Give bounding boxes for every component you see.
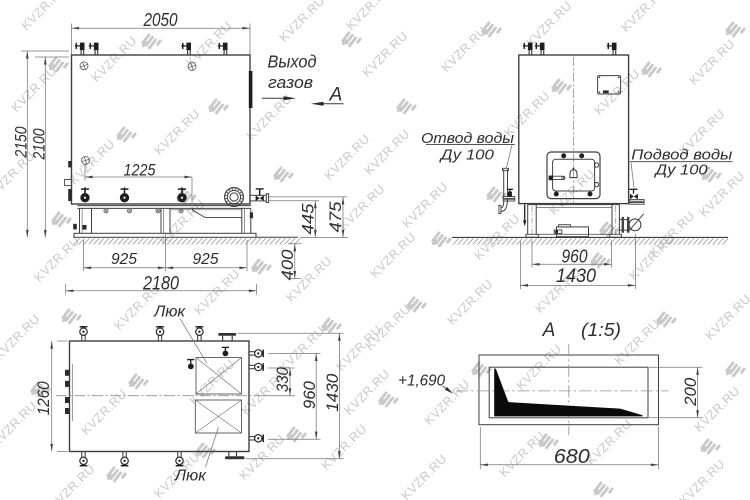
svg-text:KVZR.RU: KVZR.RU <box>89 34 140 85</box>
svg-text:KVZR.RU: KVZR.RU <box>0 399 40 450</box>
svg-text:KVZR.RU: KVZR.RU <box>79 387 130 438</box>
svg-text:KVZR.RU: KVZR.RU <box>677 457 728 500</box>
svg-text:KVZR.RU: KVZR.RU <box>32 234 83 285</box>
svg-text:2180: 2180 <box>142 273 179 294</box>
svg-text:925: 925 <box>111 251 137 268</box>
svg-text:Люк: Люк <box>153 303 186 320</box>
svg-text:KVZR.RU: KVZR.RU <box>192 267 243 318</box>
svg-text:KVZR.RU: KVZR.RU <box>277 324 328 375</box>
svg-text:Люк: Люк <box>174 467 207 484</box>
svg-text:2100: 2100 <box>31 128 49 161</box>
svg-text:1430: 1430 <box>323 373 342 412</box>
svg-text:A: A <box>329 85 343 106</box>
svg-text:KVZR.RU: KVZR.RU <box>400 180 451 231</box>
svg-text:680: 680 <box>554 446 590 468</box>
svg-text:KVZR.RU: KVZR.RU <box>0 312 43 363</box>
svg-text:KVZR.RU: KVZR.RU <box>399 452 450 500</box>
svg-text:KVZR.RU: KVZR.RU <box>152 107 203 158</box>
svg-text:Подвод воды: Подвод воды <box>631 148 732 164</box>
svg-text:KVZR.RU: KVZR.RU <box>319 422 370 473</box>
svg-text:Ду 100: Ду 100 <box>438 147 493 163</box>
svg-text:KVZR.RU: KVZR.RU <box>67 137 118 188</box>
svg-text:Выход: Выход <box>268 52 317 72</box>
svg-text:330: 330 <box>273 367 292 392</box>
svg-text:KVZR.RU: KVZR.RU <box>360 29 411 80</box>
svg-text:925: 925 <box>193 251 219 268</box>
svg-text:KVZR.RU: KVZR.RU <box>703 292 750 343</box>
svg-text:960: 960 <box>562 246 588 266</box>
svg-text:KVZR.RU: KVZR.RU <box>368 230 419 281</box>
svg-text:KVZR.RU: KVZR.RU <box>277 0 328 45</box>
svg-text:200: 200 <box>681 377 700 407</box>
svg-text:KVZR.RU: KVZR.RU <box>9 64 60 115</box>
svg-text:KVZR.RU: KVZR.RU <box>445 277 496 328</box>
svg-text:2150: 2150 <box>13 126 31 159</box>
svg-text:KVZR.RU: KVZR.RU <box>687 37 738 88</box>
svg-text:газов: газов <box>268 74 313 92</box>
svg-text:KVZR.RU: KVZR.RU <box>619 0 670 35</box>
svg-text:960: 960 <box>300 381 319 410</box>
svg-text:(1:5): (1:5) <box>581 320 621 340</box>
svg-text:1260: 1260 <box>35 381 53 416</box>
svg-text:KVZR.RU: KVZR.RU <box>19 0 70 33</box>
svg-text:445: 445 <box>298 203 317 235</box>
svg-text:KVZR.RU: KVZR.RU <box>344 0 395 33</box>
svg-text:2050: 2050 <box>143 10 178 30</box>
svg-text:1225: 1225 <box>124 162 157 180</box>
svg-text:400: 400 <box>278 249 297 281</box>
svg-text:KVZR.RU: KVZR.RU <box>362 127 413 178</box>
svg-text:1430: 1430 <box>556 266 596 287</box>
svg-text:475: 475 <box>326 201 345 233</box>
svg-text:KVZR.RU: KVZR.RU <box>322 132 373 183</box>
svg-text:KVZR.RU: KVZR.RU <box>47 462 98 500</box>
svg-text:KVZR.RU: KVZR.RU <box>524 0 575 50</box>
svg-text:A: A <box>542 320 556 341</box>
svg-text:Ду 100: Ду 100 <box>653 163 707 179</box>
svg-text:KVZR.RU: KVZR.RU <box>497 429 548 480</box>
svg-text:+1,690: +1,690 <box>398 373 445 390</box>
